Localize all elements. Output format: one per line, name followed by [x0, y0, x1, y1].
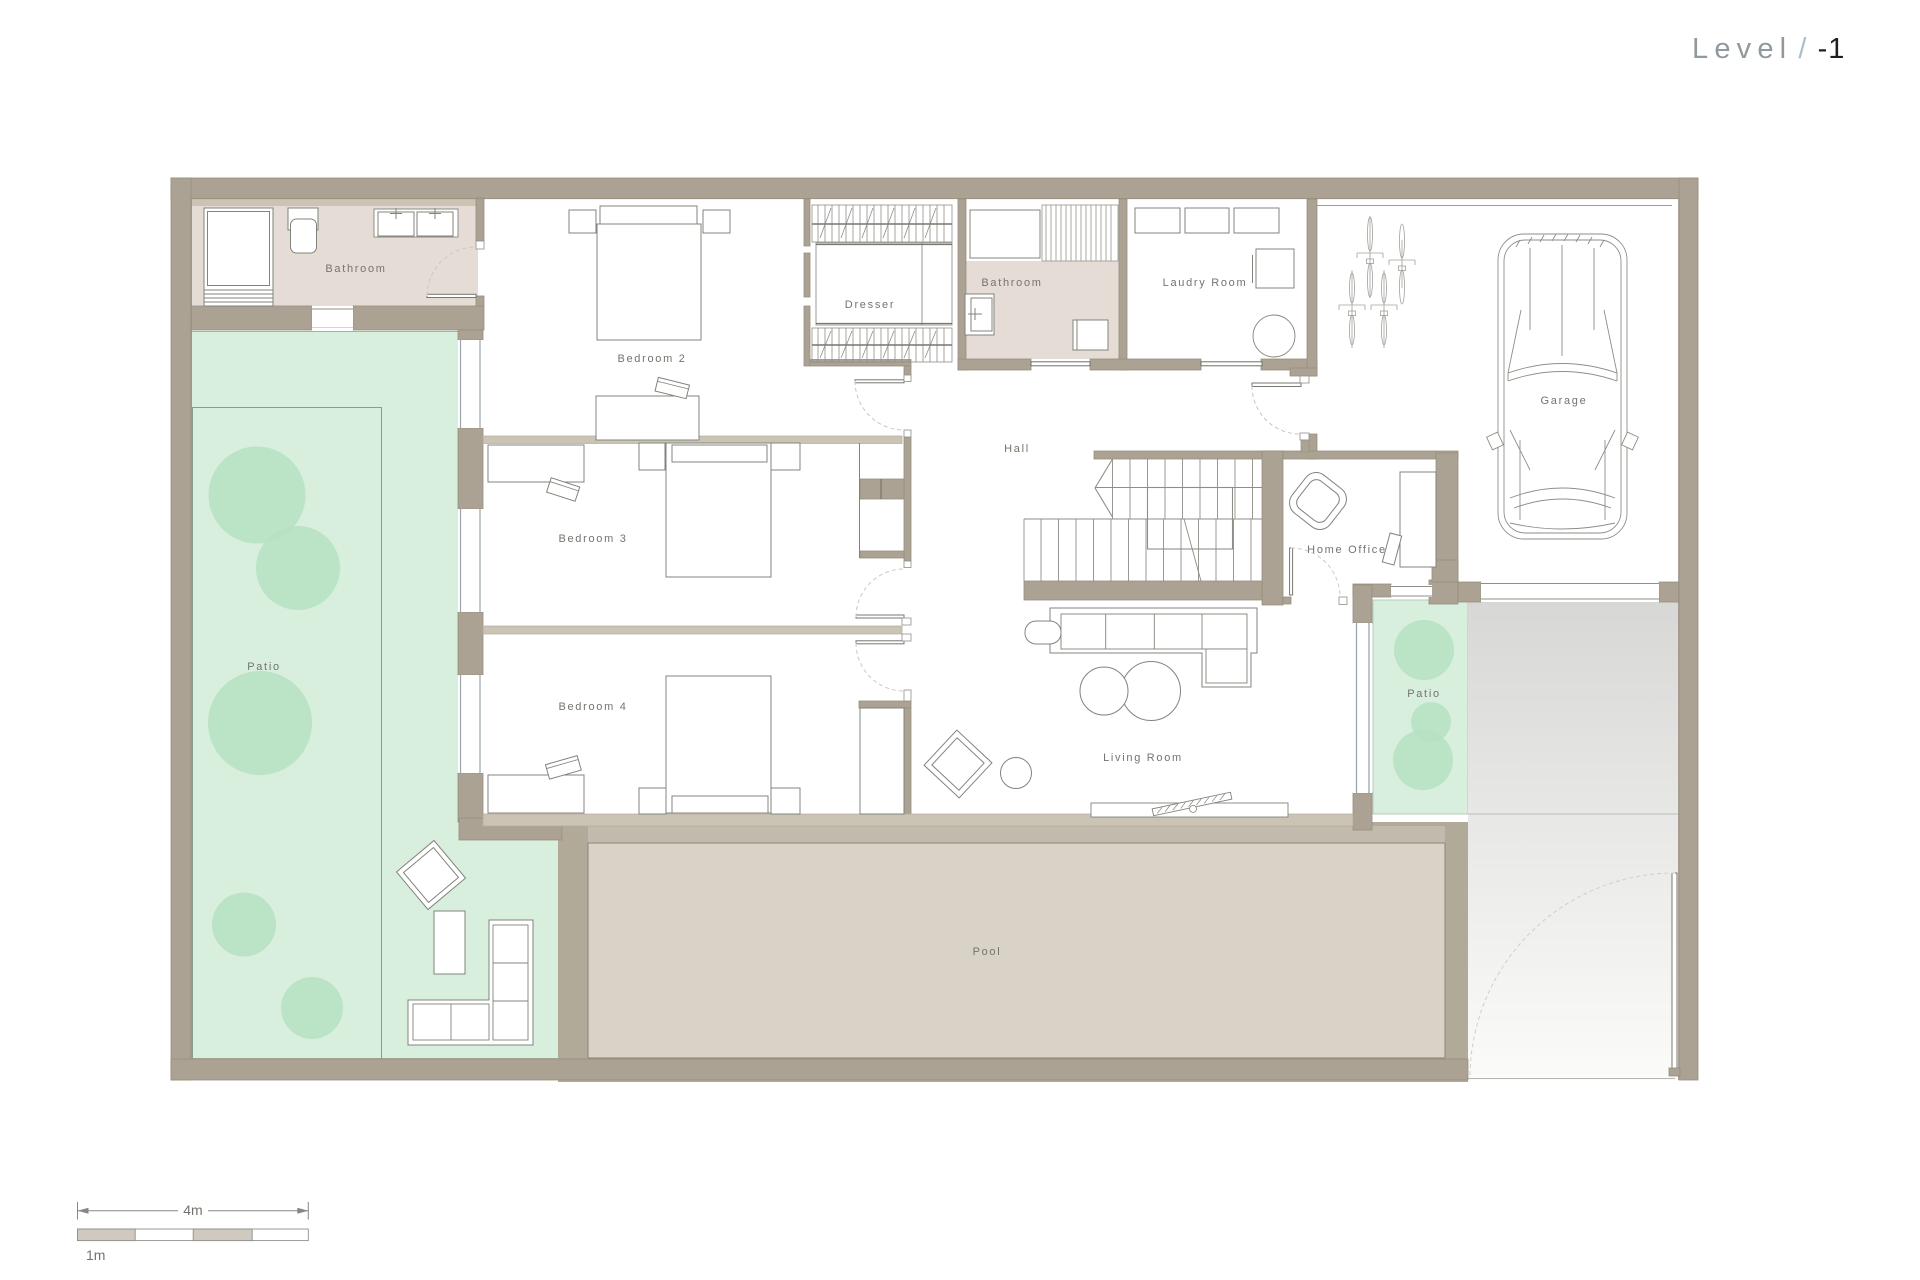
- svg-text:Bathroom: Bathroom: [325, 263, 386, 275]
- svg-text:Bedroom 3: Bedroom 3: [558, 533, 627, 545]
- svg-text:Bedroom 4: Bedroom 4: [558, 701, 627, 713]
- svg-text:4m: 4m: [183, 1202, 202, 1218]
- svg-text:Patio: Patio: [247, 661, 281, 673]
- svg-text:Hall: Hall: [1004, 443, 1030, 455]
- svg-text:Home Office: Home Office: [1307, 544, 1387, 556]
- svg-text:Bedroom 2: Bedroom 2: [617, 353, 686, 365]
- svg-text:Living Room: Living Room: [1103, 752, 1183, 764]
- svg-text:Level/-1: Level/-1: [1692, 33, 1845, 65]
- svg-text:1m: 1m: [86, 1247, 105, 1263]
- svg-text:Laudry Room: Laudry Room: [1163, 277, 1248, 289]
- svg-text:Bathroom: Bathroom: [981, 277, 1042, 289]
- svg-text:Dresser: Dresser: [845, 299, 895, 311]
- svg-text:Patio: Patio: [1407, 688, 1441, 700]
- svg-text:Garage: Garage: [1541, 395, 1588, 407]
- svg-text:Pool: Pool: [973, 946, 1002, 958]
